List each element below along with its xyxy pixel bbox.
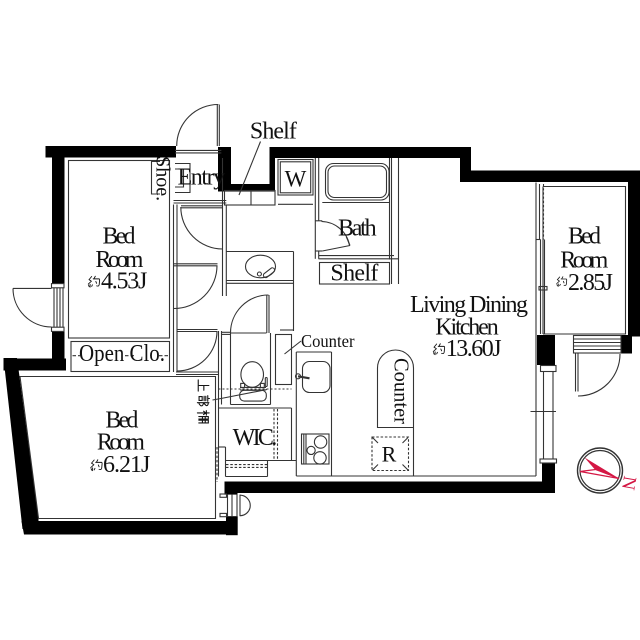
svg-text:Bed: Bed bbox=[568, 224, 601, 250]
svg-text:4.53J: 4.53J bbox=[101, 269, 147, 295]
svg-text:Counter: Counter bbox=[301, 331, 355, 351]
svg-text:WIC.: WIC. bbox=[233, 425, 278, 451]
svg-text:R: R bbox=[382, 442, 397, 467]
svg-text:13.60J: 13.60J bbox=[446, 336, 502, 362]
svg-text:Open Clo.: Open Clo. bbox=[79, 341, 165, 367]
svg-text:Bath: Bath bbox=[338, 216, 377, 242]
svg-text:Entry: Entry bbox=[178, 165, 226, 191]
svg-text:Shelf: Shelf bbox=[250, 119, 297, 145]
svg-text:2.85J: 2.85J bbox=[568, 270, 613, 296]
svg-text:Shelf: Shelf bbox=[330, 261, 378, 287]
svg-text:W: W bbox=[285, 167, 307, 192]
svg-text:Bed: Bed bbox=[103, 224, 136, 250]
svg-text:Counter: Counter bbox=[390, 358, 414, 424]
svg-text:Shoe.: Shoe. bbox=[152, 156, 174, 201]
svg-text:6.21J: 6.21J bbox=[103, 452, 150, 478]
